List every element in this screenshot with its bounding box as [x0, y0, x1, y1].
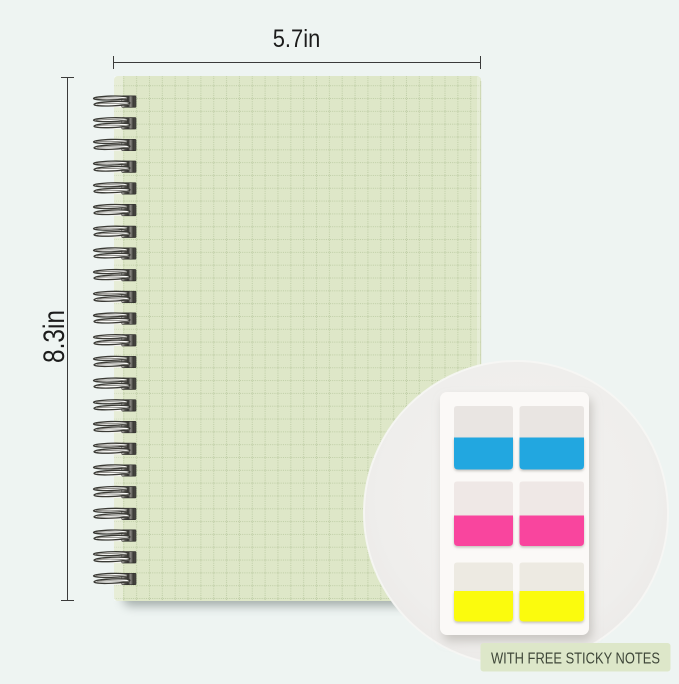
- svg-text:5.7in: 5.7in: [273, 25, 321, 53]
- svg-text:WITH FREE STICKY NOTES: WITH FREE STICKY NOTES: [491, 651, 660, 668]
- svg-text:8.3in: 8.3in: [38, 310, 71, 363]
